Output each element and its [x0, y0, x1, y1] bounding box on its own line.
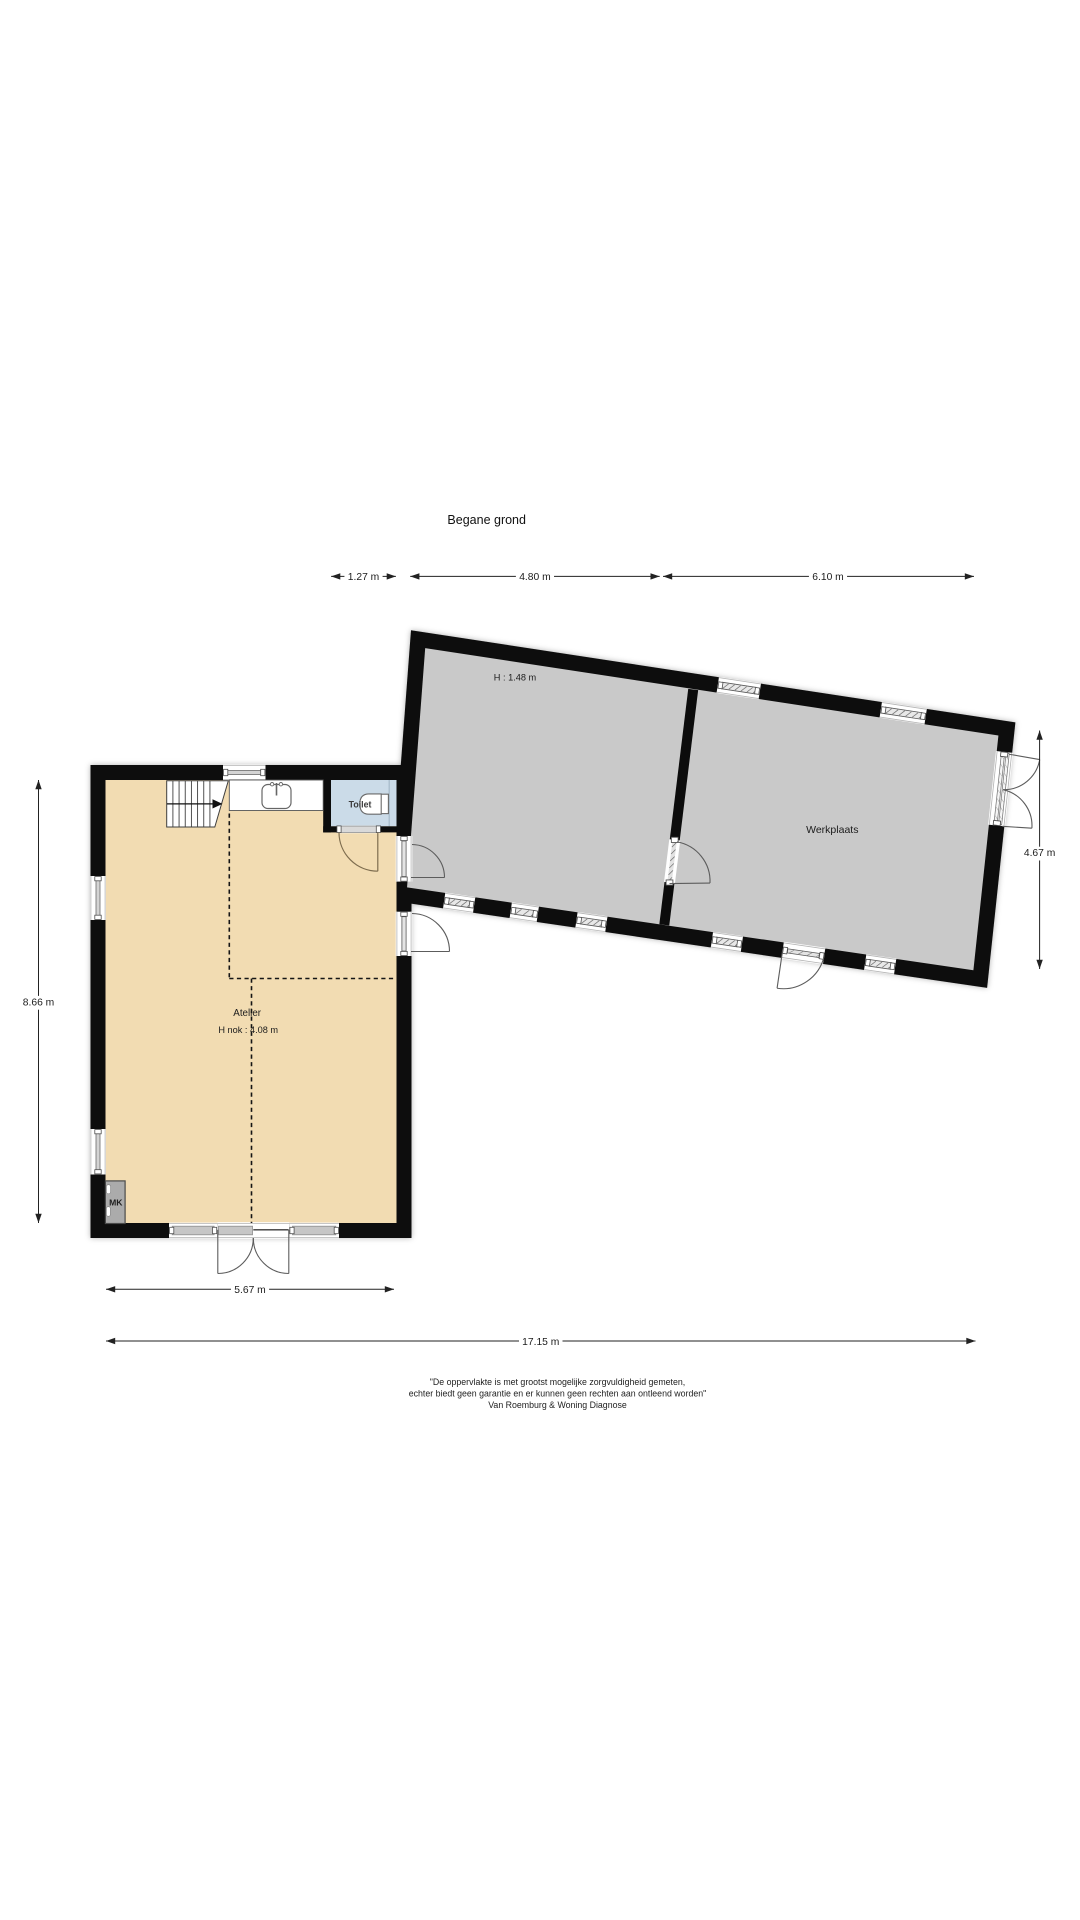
svg-text:6.10 m: 6.10 m	[812, 572, 843, 583]
svg-text:Werkplaats: Werkplaats	[806, 824, 858, 836]
svg-text:4.67 m: 4.67 m	[1024, 848, 1055, 859]
svg-text:17.15 m: 17.15 m	[522, 1337, 559, 1348]
svg-text:echter biedt geen garantie en: echter biedt geen garantie en er kunnen …	[409, 1389, 707, 1399]
svg-text:MK: MK	[109, 1198, 123, 1208]
svg-text:5.67 m: 5.67 m	[234, 1285, 265, 1296]
svg-text:H : 1.48 m: H : 1.48 m	[494, 673, 537, 683]
svg-text:Atelier: Atelier	[233, 1008, 262, 1019]
svg-text:4.80 m: 4.80 m	[519, 572, 550, 583]
svg-text:H nok : 4.08 m: H nok : 4.08 m	[218, 1025, 278, 1035]
svg-text:8.66 m: 8.66 m	[23, 997, 54, 1008]
svg-text:"De oppervlakte is met grootst: "De oppervlakte is met grootst mogelijke…	[430, 1377, 685, 1387]
svg-text:Van Roemburg & Woning Diagnose: Van Roemburg & Woning Diagnose	[488, 1400, 627, 1410]
svg-text:Toilet: Toilet	[349, 799, 372, 809]
svg-text:Begane grond: Begane grond	[447, 513, 526, 527]
svg-text:1.27 m: 1.27 m	[348, 572, 379, 583]
